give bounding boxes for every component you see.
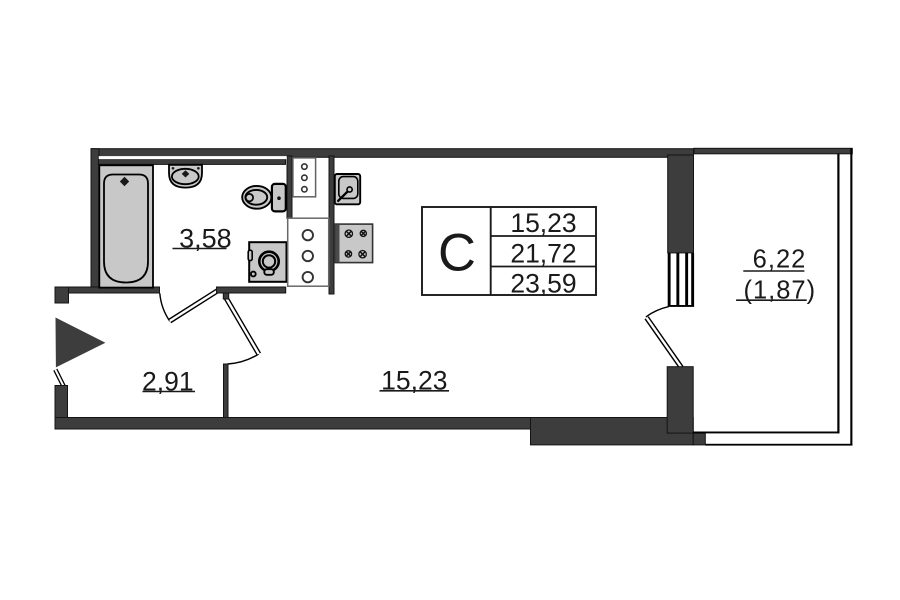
svg-text:21,72: 21,72 <box>510 238 576 268</box>
svg-text:15,23: 15,23 <box>510 208 576 238</box>
svg-text:23,59: 23,59 <box>510 269 576 299</box>
svg-text:C: C <box>438 224 476 283</box>
svg-text:6,22: 6,22 <box>753 246 807 274</box>
